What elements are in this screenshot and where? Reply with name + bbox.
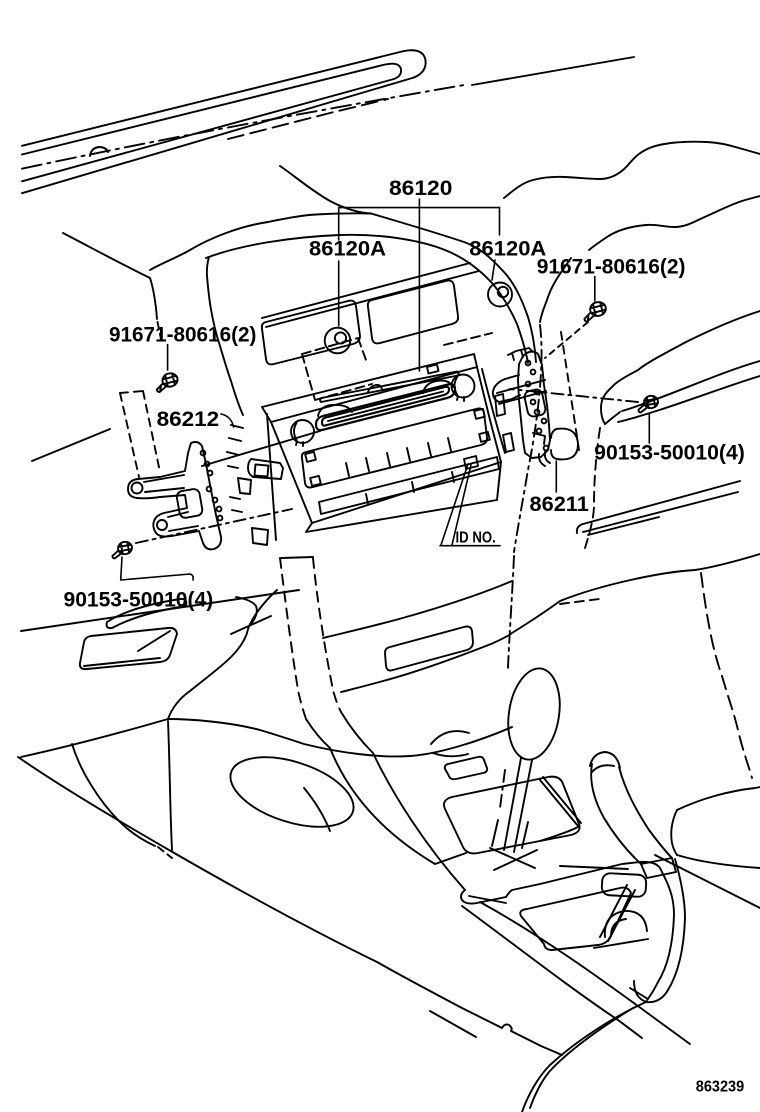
svg-text:86212: 86212: [157, 408, 220, 431]
svg-text:90153-50010(4): 90153-50010(4): [594, 441, 745, 464]
svg-text:863239: 863239: [696, 1078, 745, 1095]
svg-text:90153-50010(4): 90153-50010(4): [64, 588, 214, 611]
svg-text:91671-80616(2): 91671-80616(2): [109, 324, 256, 347]
svg-text:86120A: 86120A: [309, 238, 386, 261]
svg-text:86211: 86211: [530, 493, 590, 516]
svg-text:86120: 86120: [389, 177, 452, 200]
svg-text:ID NO.: ID NO.: [456, 530, 496, 547]
svg-text:86120A: 86120A: [469, 238, 546, 261]
svg-text:91671-80616(2): 91671-80616(2): [537, 256, 686, 279]
